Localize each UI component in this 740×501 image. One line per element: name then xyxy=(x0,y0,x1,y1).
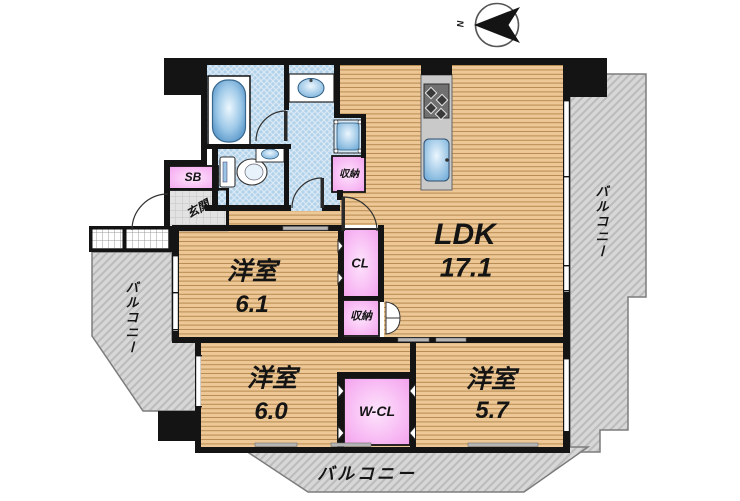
room-size-bedroom-60: 6.0 xyxy=(254,400,287,424)
pillar-top-left xyxy=(164,58,206,95)
pillar-top-right xyxy=(565,58,607,97)
compass-icon xyxy=(474,4,520,47)
balcony-bottom-label: バルコニー xyxy=(317,466,417,483)
vanity-sink-icon xyxy=(289,74,334,102)
room-label-bedroom-57: 洋室 xyxy=(466,368,516,393)
storage-mid-label: 収納 xyxy=(350,312,372,323)
room-label-ldk: LDK xyxy=(434,220,496,250)
kitchen-counter-icon xyxy=(421,75,452,190)
balcony-right-label: バルコニー xyxy=(595,185,608,260)
bedroom-57-floor xyxy=(416,343,563,447)
room-label-bedroom-60: 洋室 xyxy=(247,367,297,392)
room-size-bedroom-61: 6.1 xyxy=(235,293,268,317)
storage-upper-label: 収納 xyxy=(339,170,359,180)
room-size-bedroom-57: 5.7 xyxy=(475,399,508,423)
balcony-left-label: バルコニー xyxy=(125,281,138,356)
floorplan: N LDK 17.1 洋室 6.1 洋室 6.0 洋室 5.7 CL 収納 収納… xyxy=(0,0,740,501)
washer-pan-icon xyxy=(334,120,362,153)
compass-north-label: N xyxy=(457,21,466,28)
shoe-box-label: SB xyxy=(185,171,202,183)
closet-label: CL xyxy=(351,257,368,270)
pillar-bottom-left xyxy=(158,411,198,441)
room-size-ldk: 17.1 xyxy=(440,255,493,282)
floorplan-drawing xyxy=(0,0,740,501)
walk-in-closet-label: W-CL xyxy=(359,404,395,418)
room-label-bedroom-61: 洋室 xyxy=(227,260,277,285)
bathtub-icon xyxy=(208,76,250,146)
